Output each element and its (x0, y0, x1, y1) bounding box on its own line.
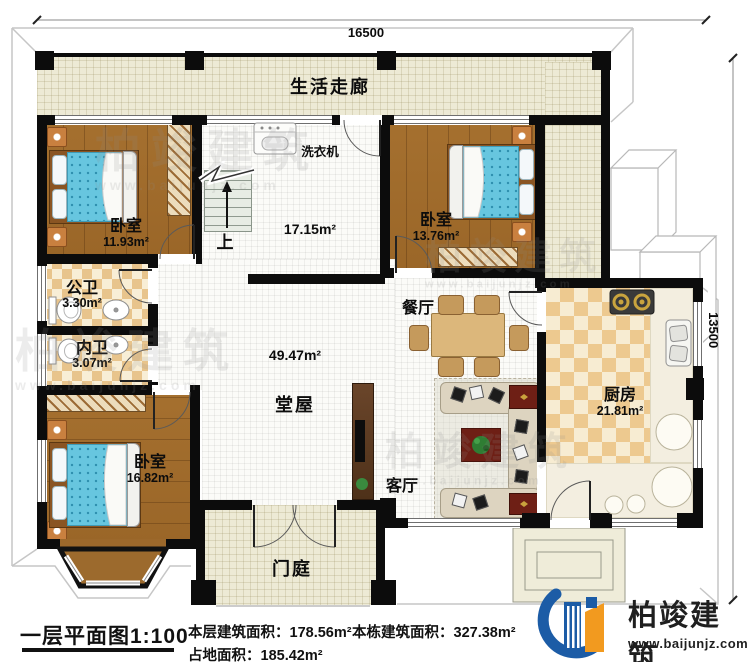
wall-segment (37, 53, 610, 57)
window (55, 115, 172, 125)
room-area-bedroom-top-left: 11.93m² (86, 236, 166, 250)
wall-segment (601, 53, 610, 278)
door-opening (550, 518, 590, 528)
coffee-table (461, 428, 501, 462)
pillow (52, 448, 67, 482)
window (37, 334, 47, 386)
room-area-public-bath: 3.30m² (42, 297, 122, 311)
wall-segment (37, 326, 153, 335)
side-mat (509, 385, 539, 409)
room-area-kitchen: 21.81m² (580, 405, 660, 419)
nightstand (47, 420, 67, 440)
room-label-living: 客厅 (370, 478, 434, 496)
column (377, 51, 396, 70)
sofa-pillow (514, 419, 529, 434)
floor-porch (201, 505, 381, 605)
dining-table (431, 313, 505, 357)
bay-opening (60, 539, 166, 549)
room-label-bedroom-top-left: 卧室 (86, 218, 166, 236)
nightstand (512, 222, 532, 242)
door-opening (148, 346, 158, 382)
wardrobe (167, 122, 191, 216)
pillow (52, 155, 67, 185)
stat-floor-area: 本层建筑面积：178.56m² (188, 621, 352, 642)
room-label-bedroom-bottom-left: 卧室 (110, 454, 190, 472)
dining-chair (409, 325, 429, 351)
dining-chair (474, 357, 500, 377)
dining-chair (474, 295, 500, 315)
room-label-bedroom-top-right: 卧室 (396, 212, 476, 230)
room-label-public-bath: 公卫 (42, 280, 122, 298)
room-area-bedroom-bottom-left: 16.82m² (110, 472, 190, 486)
stat-building-area: 本栋建筑面积：327.38m² (352, 621, 516, 642)
nightstand (47, 227, 67, 247)
stat-label: 占地面积： (188, 648, 261, 662)
bed-blanket (67, 152, 121, 222)
window (693, 302, 703, 366)
column (191, 580, 216, 605)
pillow (519, 184, 534, 215)
floor-corridor-right (545, 62, 601, 278)
stat-label: 本栋建筑面积： (352, 625, 454, 641)
brand-name: 柏竣建筑 (628, 592, 750, 662)
room-label-hall: 堂屋 (258, 396, 332, 416)
dining-chair (438, 357, 464, 377)
room-area-hall: 49.47m² (255, 348, 335, 363)
window (207, 115, 332, 125)
bed-footboard (449, 145, 463, 219)
wardrobe (438, 247, 518, 267)
bed-footboard (123, 151, 137, 223)
kitchen-counter-right (650, 288, 693, 463)
pillow (52, 189, 67, 219)
door-opening (537, 292, 546, 332)
stairs-up-label: 上 (210, 234, 240, 253)
dimension-right-label: 13500 (706, 300, 720, 360)
sofa-pillow (514, 469, 529, 484)
column (35, 51, 54, 70)
room-area-bedroom-top-right: 13.76m² (396, 230, 476, 244)
column (677, 513, 703, 528)
wall-segment (196, 505, 205, 583)
dimension-top-label: 16500 (330, 26, 402, 40)
pillow (52, 486, 67, 520)
stat-label: 本层建筑面积： (188, 625, 290, 641)
title-underline (22, 648, 174, 652)
stat-value: 327.38m² (454, 625, 516, 641)
kitchen-counter-bottom (546, 463, 693, 518)
wall-segment (535, 115, 545, 278)
column (371, 580, 396, 605)
stairs (204, 170, 252, 232)
wall-segment (192, 115, 202, 264)
column (590, 513, 612, 528)
brand-logo-icon (522, 588, 632, 662)
wall-segment (535, 278, 703, 288)
sofa-pillow (469, 385, 484, 400)
stat-value: 178.56m² (290, 625, 352, 641)
room-area-stair-hall: 17.15m² (270, 222, 350, 237)
floor-plan: 16500 13500 生活走廊 卧室 11.93m² 洗衣机 17.15m² … (0, 0, 750, 662)
window (693, 420, 703, 468)
wall-segment (380, 115, 390, 275)
dining-chair (509, 325, 529, 351)
door-opening (394, 268, 432, 278)
bed-blanket (463, 146, 519, 218)
column (185, 51, 204, 70)
room-label-kitchen: 厨房 (580, 387, 660, 405)
nightstand (47, 127, 67, 147)
stat-value: 185.42m² (261, 648, 323, 662)
room-area-inner-bath: 3.07m² (52, 357, 132, 371)
floor-bath-corridor (153, 259, 202, 390)
window (612, 518, 678, 528)
room-label-inner-bath: 内卫 (52, 340, 132, 358)
wall-segment (37, 539, 60, 549)
door-opening (152, 385, 190, 395)
brand-url: www.baijunjz.com (628, 636, 748, 651)
nightstand (512, 126, 532, 146)
side-mat (509, 493, 539, 515)
window (394, 115, 529, 125)
wardrobe (46, 394, 146, 412)
room-label-corridor: 生活走廊 (270, 78, 390, 98)
drawing-title: 一层平面图1:100 (20, 620, 189, 650)
column (686, 378, 704, 400)
column (380, 498, 396, 528)
stat-land-area: 占地面积：185.42m² (188, 644, 323, 662)
door-opening (537, 462, 546, 514)
door-opening (158, 254, 196, 264)
door-opening (340, 115, 382, 125)
washer-label: 洗衣机 (288, 146, 352, 160)
window (408, 518, 520, 528)
logo-building-orange (585, 603, 604, 652)
door-opening (148, 268, 158, 304)
column (522, 513, 550, 528)
tv (355, 420, 365, 462)
column (592, 51, 611, 70)
room-label-porch: 门庭 (260, 560, 324, 580)
room-label-dining: 餐厅 (386, 300, 450, 318)
window (37, 440, 47, 502)
pillow (519, 149, 534, 180)
wall-segment (248, 274, 385, 284)
wall-segment (166, 539, 200, 549)
